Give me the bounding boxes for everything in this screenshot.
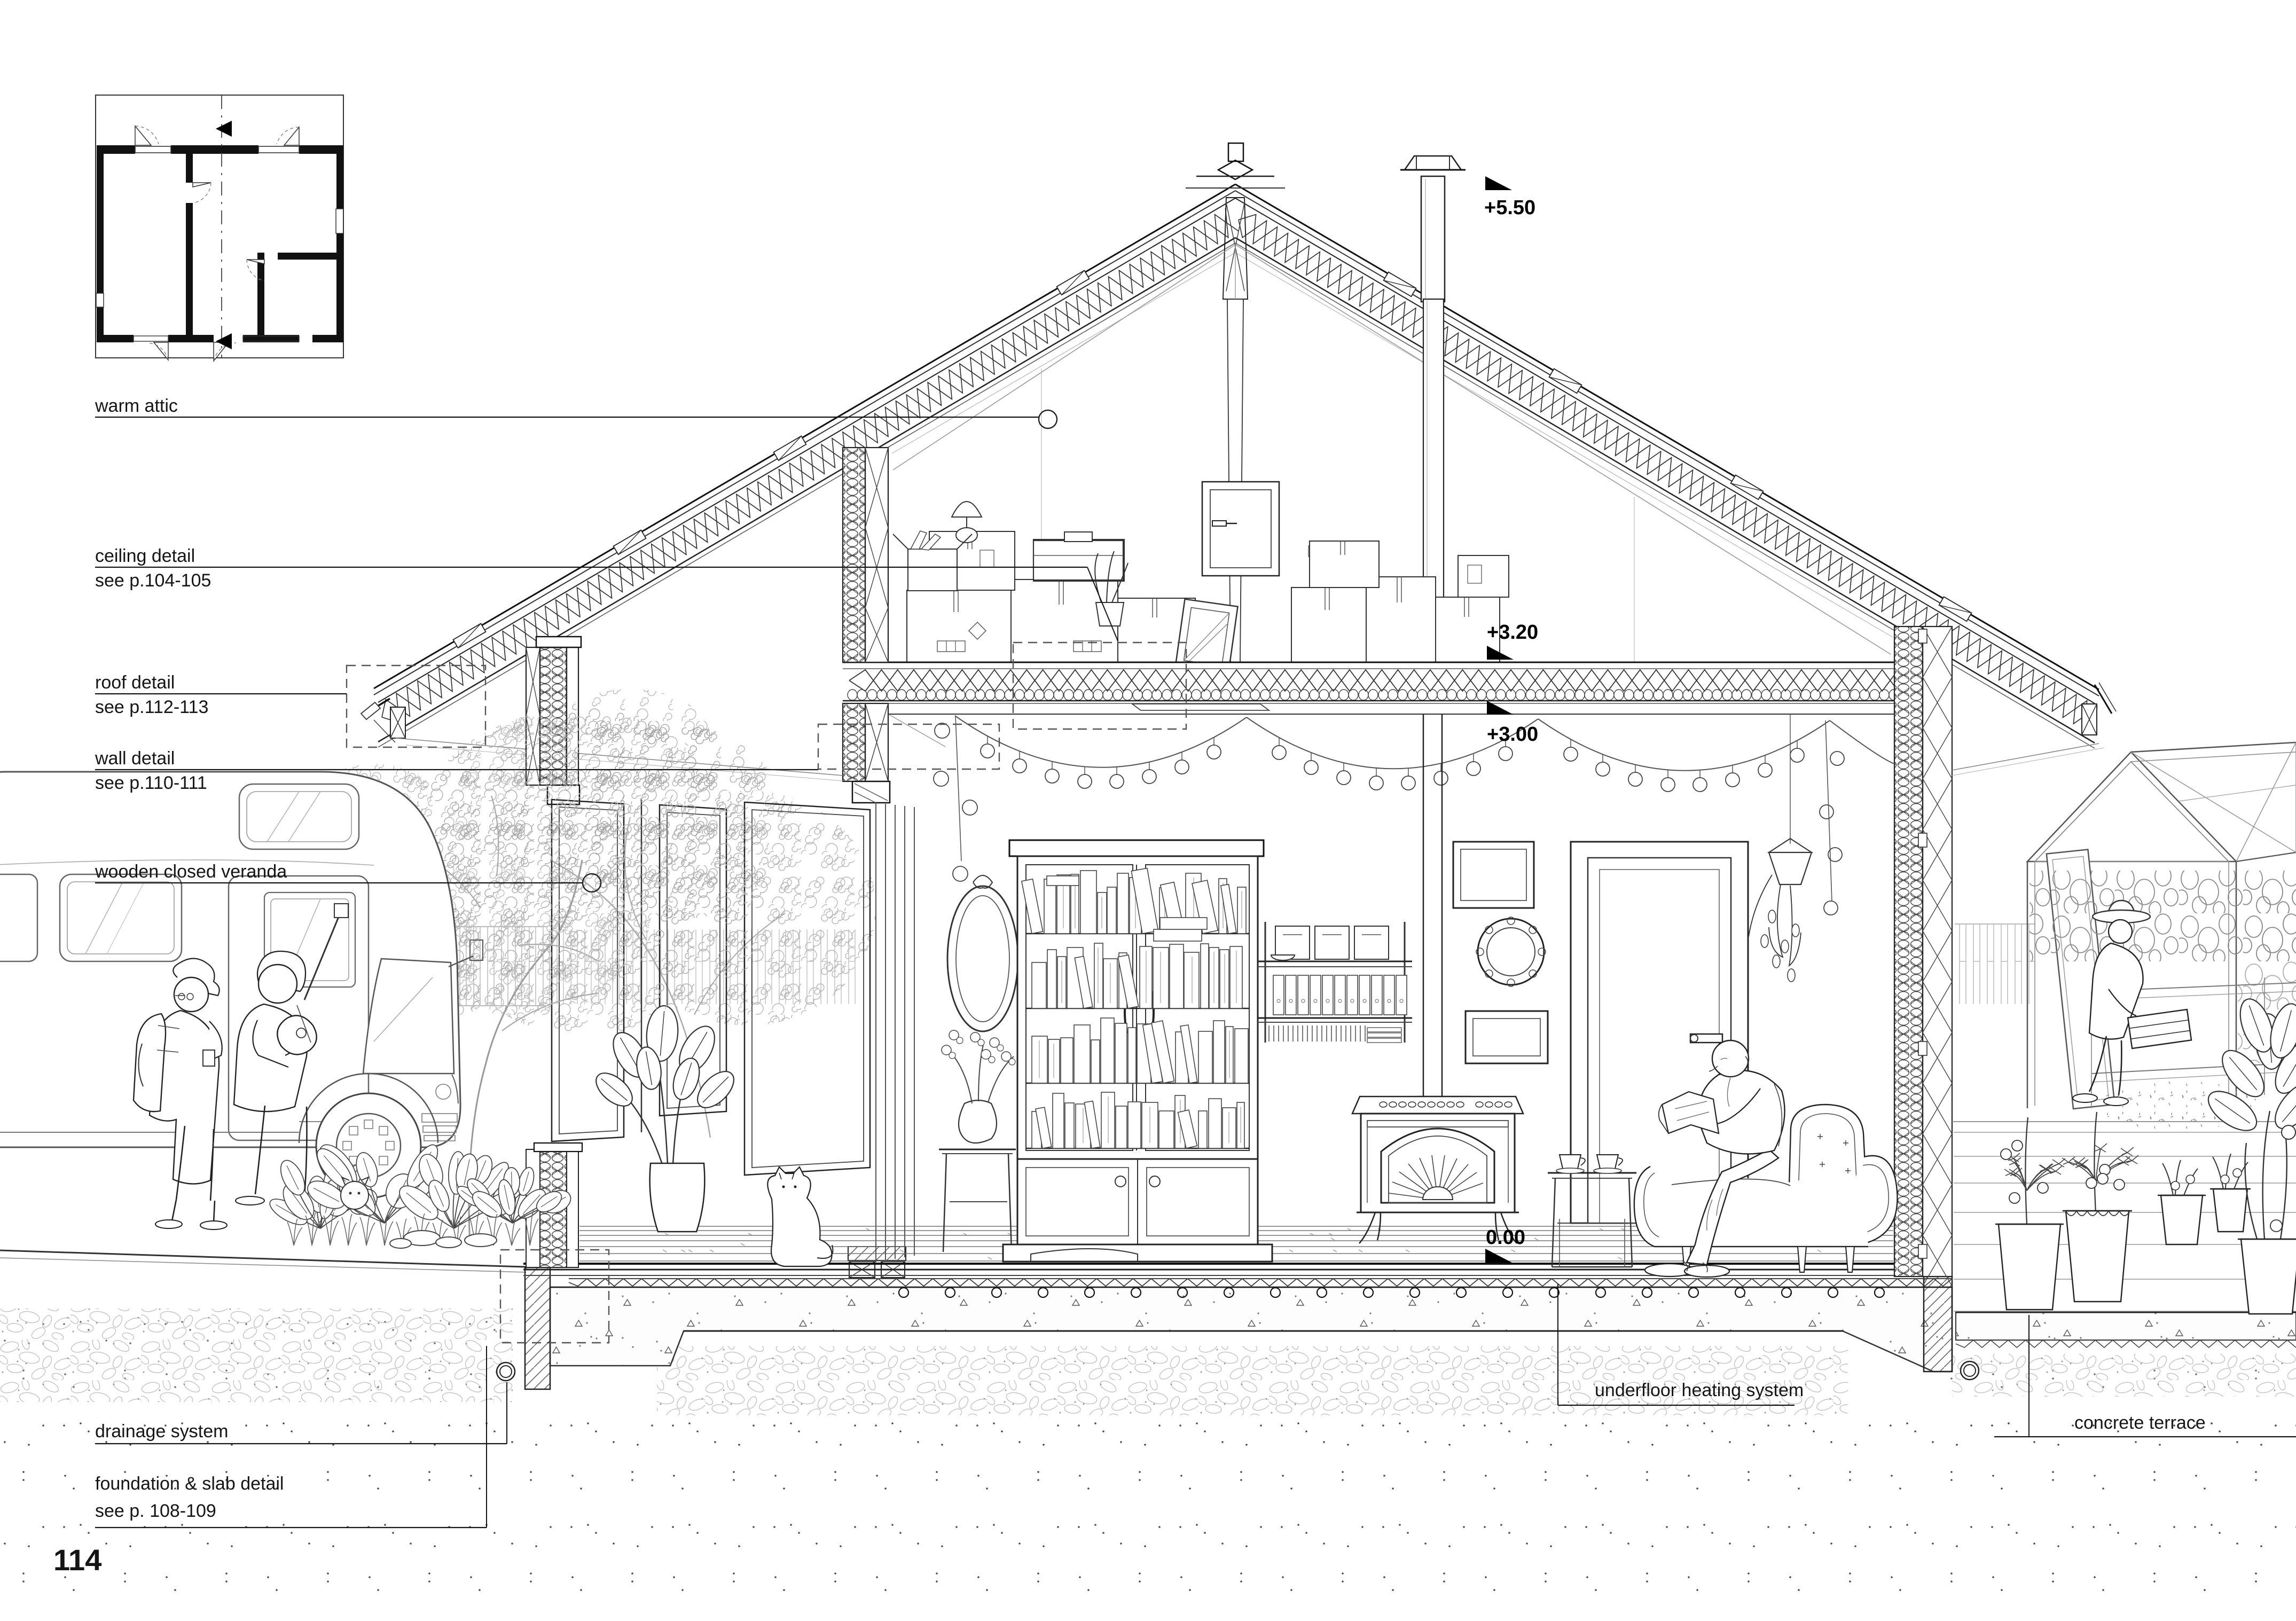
svg-text:wall detail: wall detail (95, 748, 175, 769)
svg-text:foundation & slab detail: foundation & slab detail (95, 1474, 284, 1494)
svg-text:see p.112-113: see p.112-113 (95, 697, 208, 717)
svg-text:+3.00: +3.00 (1487, 723, 1538, 746)
svg-text:see p.104-105: see p.104-105 (95, 570, 211, 591)
svg-text:roof detail: roof detail (95, 672, 175, 693)
svg-text:drainage system: drainage system (95, 1421, 228, 1442)
svg-text:0.00: 0.00 (1486, 1226, 1525, 1249)
svg-text:warm attic: warm attic (95, 396, 178, 416)
svg-text:see p. 108-109: see p. 108-109 (95, 1501, 216, 1521)
svg-text:ceiling detail: ceiling detail (95, 546, 195, 566)
svg-text:+5.50: +5.50 (1484, 197, 1535, 219)
svg-text:wooden closed veranda: wooden closed veranda (95, 862, 287, 882)
svg-text:concrete terrace: concrete terrace (2074, 1413, 2206, 1433)
svg-text:114: 114 (53, 1543, 101, 1577)
svg-text:+3.20: +3.20 (1487, 621, 1538, 644)
svg-text:see p.110-111: see p.110-111 (95, 773, 207, 793)
svg-text:underfloor heating system: underfloor heating system (1595, 1380, 1804, 1400)
